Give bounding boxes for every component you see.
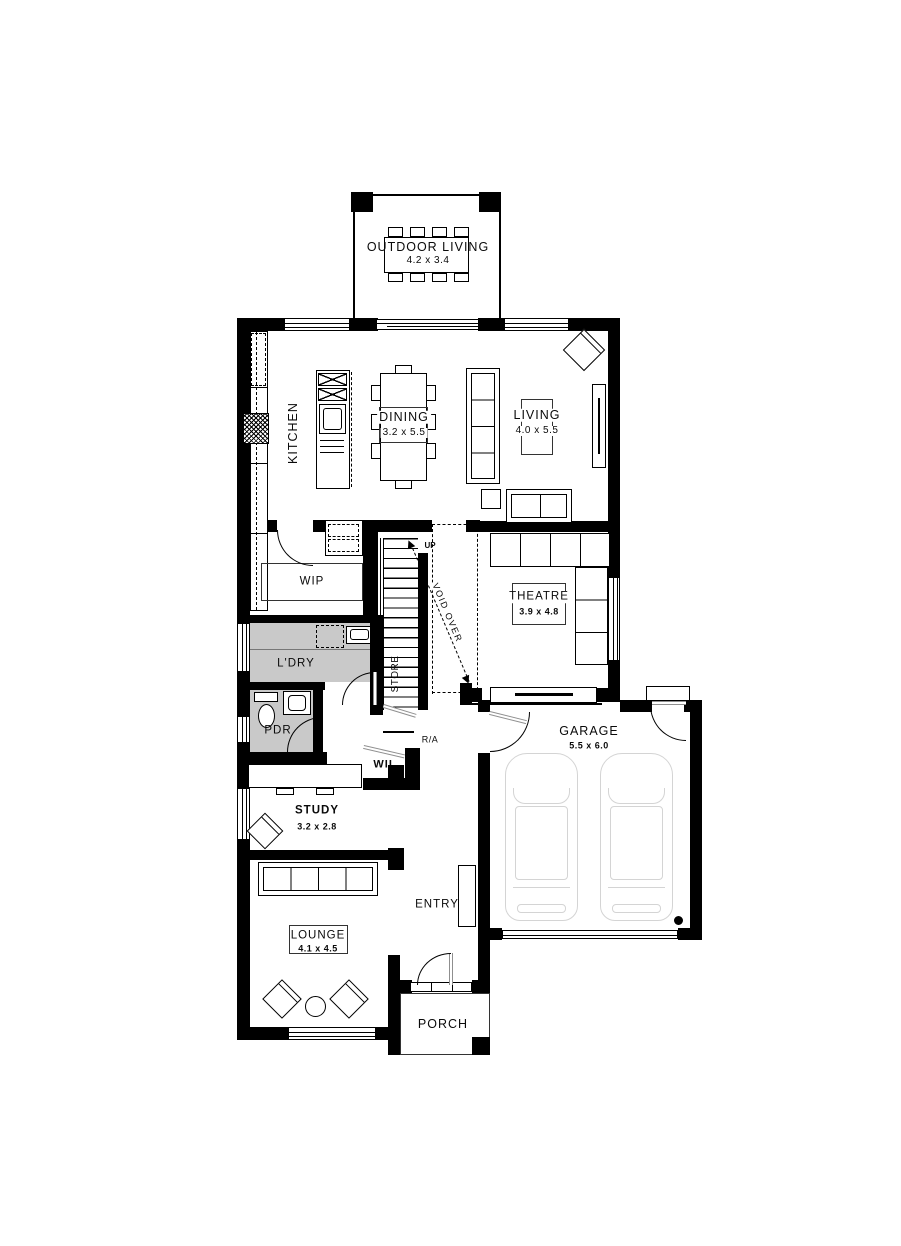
theatre-bottom-post — [596, 688, 620, 702]
study-chair — [276, 788, 294, 795]
cooktop — [243, 413, 269, 444]
wil-door-leaf — [363, 745, 405, 758]
dining-chair — [371, 385, 381, 401]
wall-left — [237, 672, 250, 716]
outdoor-living-dim: 4.2 x 3.4 — [407, 256, 450, 266]
laundry-door-leaf — [373, 672, 377, 705]
wall-garage-bottom — [478, 928, 502, 940]
fridge-space — [251, 333, 266, 386]
window-top-left — [284, 318, 350, 331]
outdoor-chair — [388, 273, 403, 282]
entry-label: ENTRY — [415, 899, 459, 911]
return-air-label: R/A — [422, 736, 439, 745]
wall-wip-right — [363, 532, 378, 615]
dining-chair — [426, 443, 436, 459]
wall-mid — [313, 520, 325, 532]
dining-chair — [371, 443, 381, 459]
wall-wil-right — [405, 748, 420, 790]
lounge-sofa-seats — [263, 867, 373, 891]
lounge-armchair — [262, 979, 302, 1019]
living-ottoman — [481, 489, 501, 509]
outdoor-post-left — [351, 192, 373, 212]
wall-garage-top — [620, 700, 652, 712]
outdoor-chair — [432, 227, 447, 237]
up-label: UP — [424, 542, 435, 550]
wall-garage-right — [690, 700, 702, 940]
car-windshield — [608, 788, 665, 804]
return-air-grille — [383, 731, 414, 733]
car-rear-line — [513, 887, 570, 889]
island-sink-bowl — [323, 408, 342, 430]
wall-garage-bottom — [678, 928, 702, 940]
dining-dim: 3.2 x 5.5 — [381, 428, 428, 438]
laundry-label: L'DRY — [277, 658, 315, 670]
car-roof — [610, 806, 663, 880]
outdoor-chair — [454, 227, 469, 237]
car-rear-line — [608, 887, 665, 889]
dining-chair — [395, 365, 412, 374]
wall-wip-laundry — [237, 615, 383, 623]
laundry-bench-line — [250, 649, 378, 650]
void-over-label: VOID OVER — [430, 580, 465, 646]
wip-shelf — [328, 524, 359, 537]
wall-entry-se — [478, 940, 490, 982]
dining-chair — [426, 385, 436, 401]
island-drawer-line — [320, 446, 344, 447]
wall-stair-right — [418, 553, 428, 710]
bench-seam — [251, 463, 267, 464]
car-roof — [515, 806, 568, 880]
void-dash-left — [432, 524, 433, 694]
outdoor-post-right — [479, 192, 501, 212]
wall-mid — [363, 520, 432, 532]
window-theatre — [608, 577, 620, 661]
car-bumper — [612, 904, 661, 913]
lounge-armchair — [329, 979, 369, 1019]
car-windshield — [513, 788, 570, 804]
garage-ext-door-leaf — [652, 701, 686, 705]
garage-dim: 5.5 x 6.0 — [569, 742, 609, 751]
wall-top — [478, 318, 506, 331]
island-appliance — [318, 388, 347, 401]
study-desk — [248, 764, 362, 788]
wip-shelf — [328, 539, 359, 552]
laundry-sink-bowl — [350, 629, 369, 640]
kitchen-label: KITCHEN — [287, 402, 300, 464]
wall-left — [237, 318, 250, 623]
theatre-sofa — [490, 533, 610, 567]
wall-study-entry — [388, 765, 404, 790]
car-bumper — [517, 904, 566, 913]
dining-label: DINING — [377, 411, 431, 424]
living-label: LIVING — [512, 409, 563, 422]
study-dim: 3.2 x 2.8 — [297, 823, 337, 832]
garage-corner-post — [460, 683, 472, 705]
store-label: STORE — [391, 656, 401, 693]
laundry-appliance — [316, 625, 344, 648]
lounge-side-table — [305, 996, 326, 1017]
garage-ext-step — [646, 686, 690, 701]
garage-label: GARAGE — [559, 725, 619, 738]
garage-floor-waste — [674, 916, 683, 925]
outdoor-chair — [454, 273, 469, 282]
wip-door-arc — [277, 530, 313, 566]
island-drawer-line — [320, 452, 344, 453]
outdoor-chair — [432, 273, 447, 282]
entry-feature-wall — [458, 865, 476, 927]
living-armchair — [563, 329, 605, 371]
window-powder — [237, 716, 250, 743]
bench-seam — [251, 387, 267, 388]
living-dim: 4.0 x 5.5 — [514, 426, 561, 436]
window-top-right — [504, 318, 569, 331]
study-armchair — [247, 813, 284, 850]
island-overhang-line — [351, 372, 352, 487]
wall-left — [237, 840, 250, 1040]
outdoor-chair — [410, 273, 425, 282]
outdoor-chair — [388, 227, 403, 237]
floor-plan-canvas: OUTDOOR LIVING 4.2 x 3.4 KITCHEN — [0, 0, 901, 1246]
island-drawer-line — [320, 440, 344, 441]
powder-basin-bowl — [288, 695, 306, 711]
void-dash-top — [432, 524, 477, 525]
toilet-cistern — [254, 692, 278, 702]
theatre-tv-line — [515, 693, 573, 696]
void-dash-right — [477, 524, 478, 700]
dining-chair — [395, 480, 412, 489]
lounge-label: LOUNGE — [291, 930, 346, 942]
study-chair — [316, 788, 334, 795]
theatre-dim: 3.9 x 4.8 — [517, 608, 561, 617]
wall-top — [350, 318, 378, 331]
living-sofa-seats — [471, 373, 495, 479]
garage-door-panel — [502, 930, 678, 939]
stacker-door — [376, 319, 480, 330]
powder-label: PDR — [264, 725, 291, 737]
island-appliance — [318, 373, 347, 386]
porch-label: PORCH — [418, 1018, 468, 1031]
wall-front — [472, 980, 490, 993]
living-sofa-small-seats — [511, 494, 567, 518]
car — [600, 753, 673, 921]
wall-porch-left — [388, 955, 400, 1055]
living-tv-line — [598, 398, 600, 454]
garage-ext-door-arc — [650, 705, 686, 741]
theatre-label: THEATRE — [507, 591, 571, 603]
lounge-dim: 4.1 x 4.5 — [298, 945, 338, 954]
outdoor-chair — [410, 227, 425, 237]
wip-label: WIP — [300, 576, 325, 588]
wall-garage-left — [478, 700, 490, 712]
wall-laundry-powder — [237, 682, 325, 690]
car — [505, 753, 578, 921]
study-label: STUDY — [295, 805, 339, 817]
front-door-arc — [417, 953, 451, 985]
outdoor-living-label: OUTDOOR LIVING — [367, 241, 489, 254]
wall-lounge-entry-nib — [388, 848, 404, 870]
wall-lounge-top — [237, 850, 388, 860]
wall-garage-left — [478, 753, 490, 930]
bench-seam — [251, 533, 267, 534]
window-lounge — [288, 1027, 376, 1040]
theatre-sofa-return — [575, 567, 608, 665]
porch-post — [472, 1037, 490, 1055]
wall-lounge-bottom — [237, 1027, 288, 1040]
window-laundry — [237, 623, 250, 672]
